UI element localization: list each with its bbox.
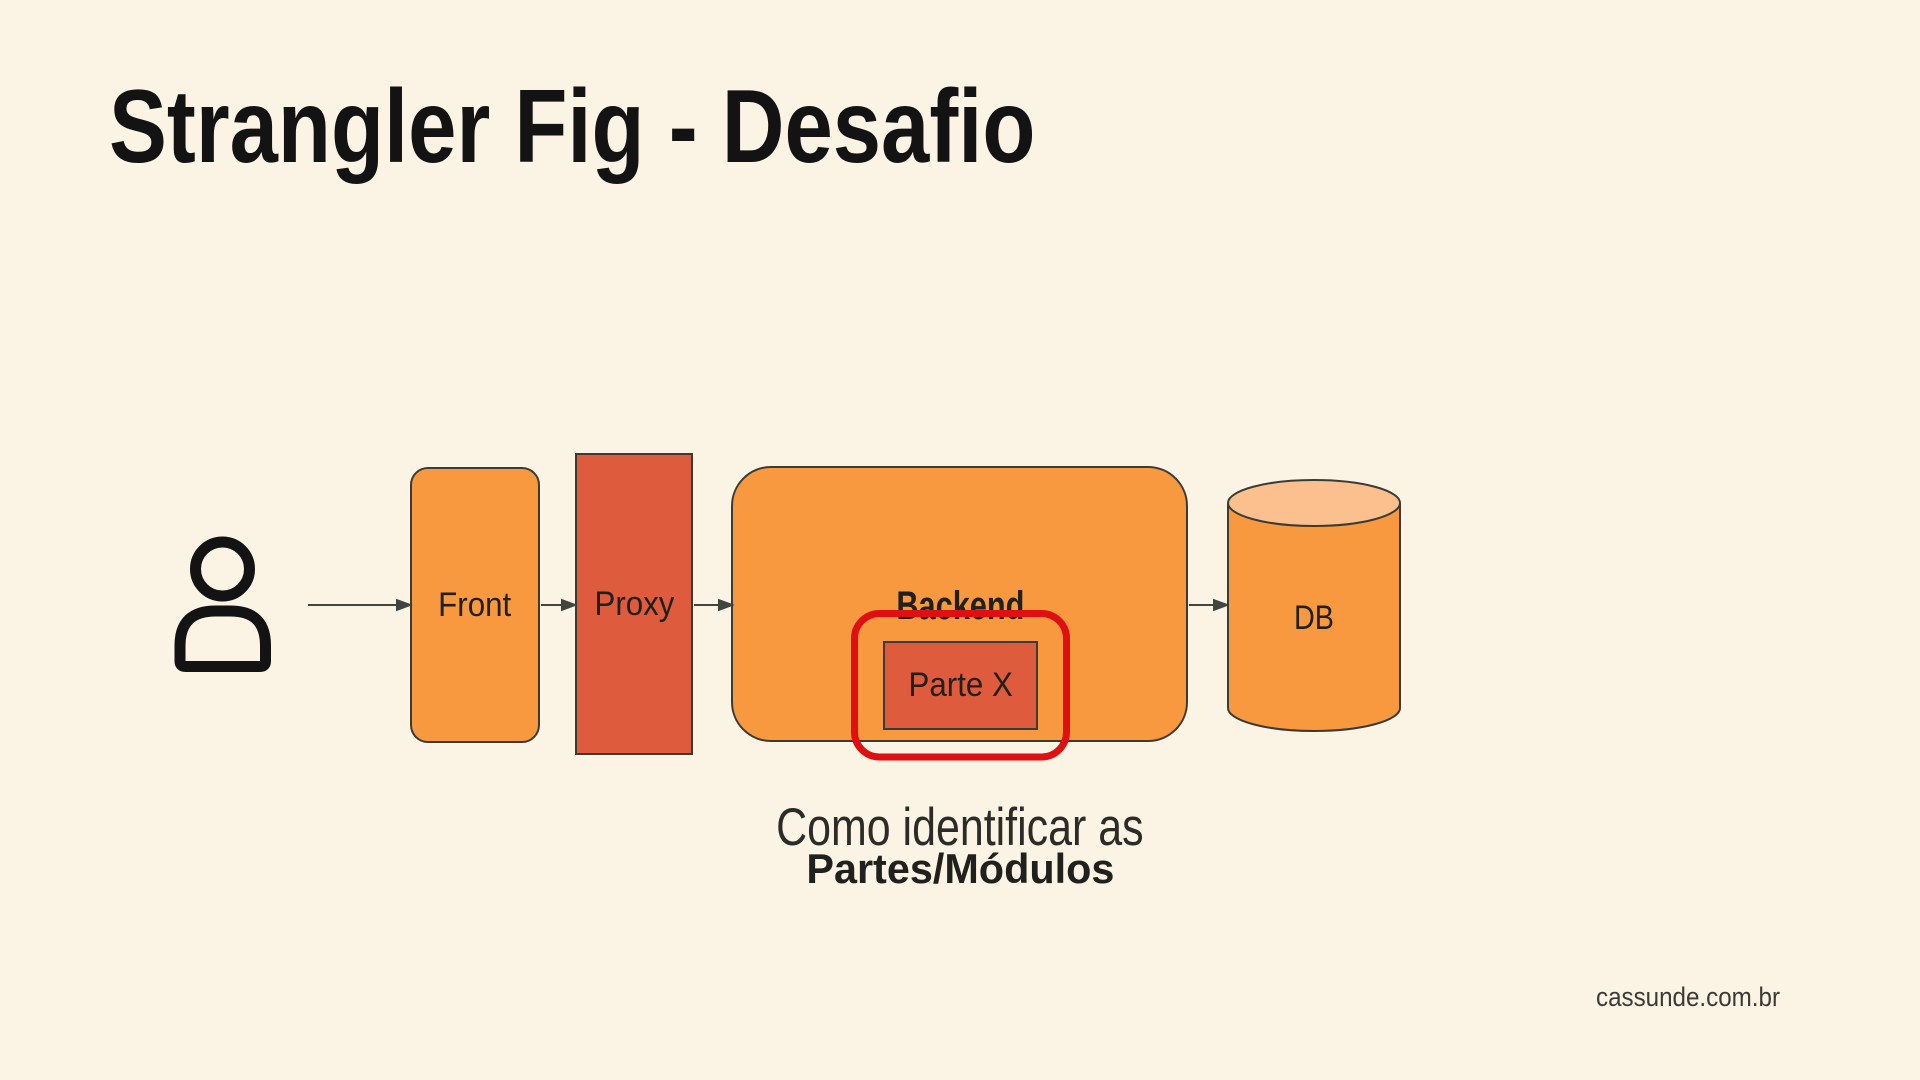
svg-text:DB: DB	[1294, 599, 1334, 637]
